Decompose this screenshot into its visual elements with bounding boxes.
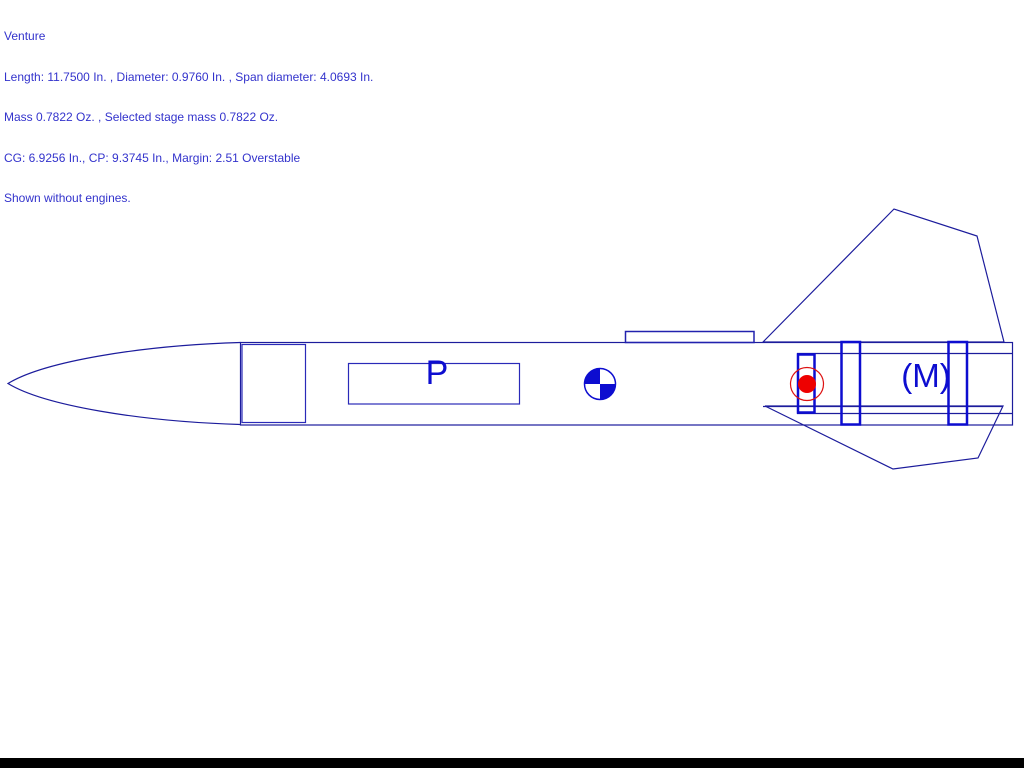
centering-ring-forward[interactable] <box>842 342 861 425</box>
parachute-label: P <box>426 354 449 392</box>
motor-mount-label: (M) <box>901 357 950 394</box>
fin-upper[interactable] <box>763 209 1004 342</box>
nose-cone[interactable] <box>8 343 241 425</box>
cg-icon <box>585 369 616 400</box>
design-view-canvas: Venture Length: 11.7500 In. , Diameter: … <box>0 0 1024 768</box>
body-tube[interactable] <box>241 343 1013 426</box>
nose-shoulder[interactable] <box>242 345 306 423</box>
rocket-diagram: P (M) <box>0 0 1024 768</box>
centering-ring-aft[interactable] <box>949 342 968 425</box>
launch-lug[interactable] <box>626 332 755 343</box>
window-edge-bar <box>0 758 1024 768</box>
cp-icon <box>791 368 824 401</box>
